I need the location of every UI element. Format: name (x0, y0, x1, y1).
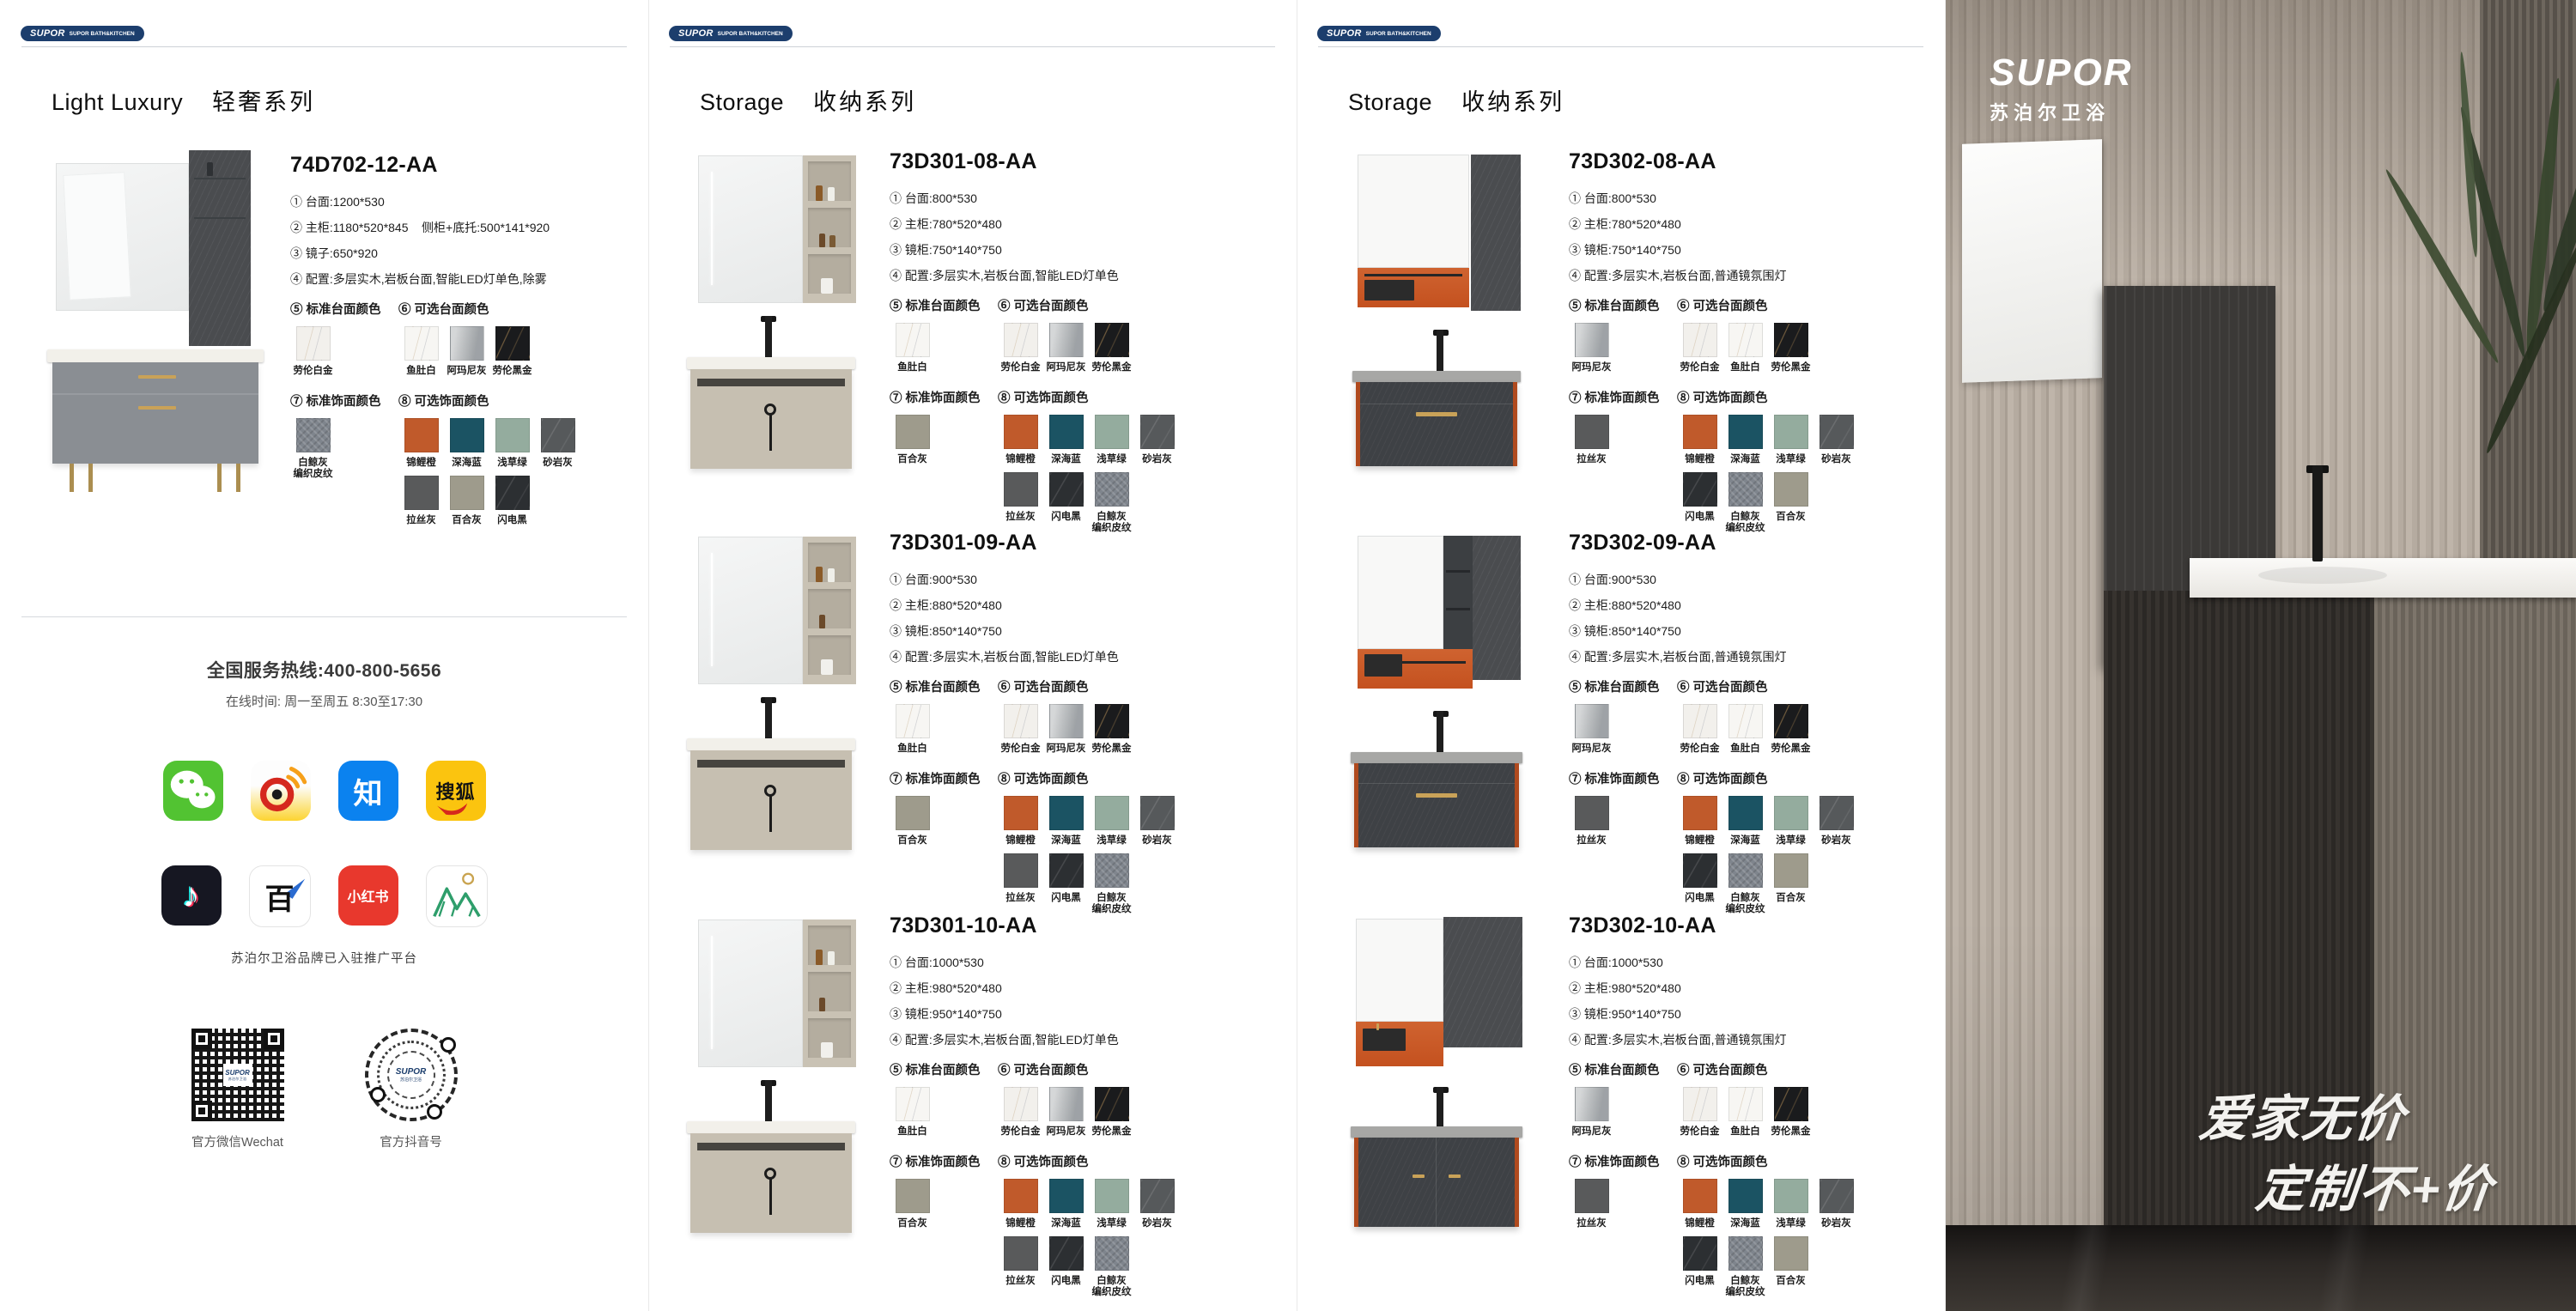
product-spec-line: ③ 镜柜:850*140*750 (1569, 618, 1935, 644)
douyin-glyph: ♪ (183, 877, 200, 915)
series-heading-en: Light Luxury (52, 89, 183, 115)
wechat-icon (163, 761, 223, 821)
product-block: 73D301-10-AA ① 台面:1000*530 ② 主柜:980*520*… (678, 908, 1286, 1284)
swatch-label: 浅草绿 (1768, 1218, 1814, 1229)
series-heading: Light Luxury轻奢系列 (52, 83, 315, 117)
handle-stem (769, 415, 772, 451)
product-spec-line: ① 台面:800*530 (890, 185, 1286, 211)
swatch-chip (1683, 323, 1717, 357)
product-block: 73D302-08-AA ① 台面:800*530 ② 主柜:780*520*4… (1327, 144, 1935, 520)
fold-line (648, 0, 649, 1311)
product-spec-line: ② 主柜:1180*520*845 侧柜+底托:500*141*920 (290, 215, 635, 240)
product-spec-line: ③ 镜柜:750*140*750 (890, 237, 1286, 263)
swatch-chip (1820, 1179, 1854, 1213)
decor-bottle (828, 187, 835, 201)
qr-dot (370, 1087, 386, 1102)
finish-optional-label: ⑧ 可选饰面颜色 (998, 388, 1286, 406)
brand-pill: SUPOR SUPOR BATH&KITCHEN (21, 26, 144, 41)
faucet (1437, 711, 1443, 754)
swatch-chip (1140, 415, 1175, 449)
swatch-label: 劳伦白金 (1677, 744, 1722, 755)
baijiahao-icon: 百 (249, 865, 311, 927)
product-spec-line: ② 主柜:880*520*480 (890, 592, 1286, 618)
finish-standard-label: ⑦ 标准饰面颜色 (1569, 1152, 1677, 1170)
swatch-label: 浅草绿 (489, 458, 535, 469)
swatch-label: 劳伦黑金 (1768, 744, 1814, 755)
brand-logo-text: SUPOR (1327, 28, 1362, 39)
swatch-label: 劳伦白金 (998, 744, 1043, 755)
black-tray (1364, 654, 1402, 677)
swatch: 砂岩灰 (1134, 415, 1180, 465)
swatch-chip (1774, 853, 1808, 888)
qr-brand-text: SUPOR (396, 1067, 427, 1077)
mirror (1358, 155, 1469, 268)
swatch: 鱼肚白 (398, 326, 444, 377)
swatch: 劳伦黑金 (1089, 323, 1134, 373)
platforms-note: 苏泊尔卫浴品牌已入驻推广平台 (21, 949, 627, 967)
loop-handle (764, 1168, 776, 1180)
swatch-label: 劳伦白金 (998, 1126, 1043, 1138)
swatch: 拉丝灰 (998, 853, 1043, 915)
swatch-label: 拉丝灰 (998, 893, 1043, 904)
brand-logo-text: SUPOR (678, 28, 714, 39)
swatch: 锦鲤橙 (1677, 1179, 1722, 1229)
swatch: 深海蓝 (444, 418, 489, 469)
mirror-reflection-sheet (1962, 139, 2102, 383)
brass-knob (1449, 1174, 1461, 1178)
swatch-label: 劳伦白金 (290, 366, 336, 377)
swatch-label: 劳伦黑金 (1768, 1126, 1814, 1138)
mirror (1356, 919, 1443, 1022)
finish-optional-label: ⑧ 可选饰面颜色 (1677, 769, 1935, 787)
swatch-label: 闪电黑 (1043, 1276, 1089, 1287)
swatch: 劳伦白金 (998, 1087, 1043, 1138)
orange-edge (1515, 763, 1519, 847)
countertop-colors: ⑤ 标准台面颜色 阿玛尼灰 ⑥ 可选台面颜色 (1569, 1060, 1935, 1144)
qr-finder (191, 1101, 212, 1121)
qr-brand-text: SUPOR (225, 1069, 249, 1077)
product-spec-line: ① 台面:800*530 (1569, 185, 1935, 211)
swatch-chip (1004, 415, 1038, 449)
baijiahao-glyph: 百 (265, 876, 295, 918)
swatch-label: 拉丝灰 (998, 512, 1043, 523)
countertop-optional-label: ⑥ 可选台面颜色 (998, 1060, 1286, 1078)
swatch-chip (1728, 1236, 1763, 1271)
product-spec-line: ② 主柜:780*520*480 (1569, 211, 1935, 237)
swatch: 砂岩灰 (1814, 1179, 1859, 1229)
product-code: 73D301-10-AA (890, 913, 1286, 938)
swatch-label: 砂岩灰 (1134, 1218, 1180, 1229)
swatch-chip (1004, 853, 1038, 888)
swatch-label: 砂岩灰 (1134, 454, 1180, 465)
swatch-chip (1049, 472, 1084, 507)
swatch: 阿玛尼灰 (444, 326, 489, 377)
finish-optional-label: ⑧ 可选饰面颜色 (1677, 1152, 1935, 1170)
swatch: 浅草绿 (1089, 796, 1134, 847)
swatch-chip (1095, 472, 1129, 507)
swatch-chip (495, 326, 530, 361)
shelf-column (1443, 536, 1473, 649)
swatch-label: 砂岩灰 (1134, 835, 1180, 847)
swatch-chip (896, 704, 930, 738)
black-tray (1363, 1029, 1406, 1051)
swatch-label: 闪电黑 (1677, 1276, 1722, 1287)
swatch: 砂岩灰 (535, 418, 580, 469)
swatch-label: 阿玛尼灰 (444, 366, 489, 377)
lower-light-slats (2374, 591, 2576, 1228)
product-spec-line: ② 主柜:780*520*480 (890, 211, 1286, 237)
photo-brand-logo: SUPOR 苏泊尔卫浴 (1990, 52, 2132, 125)
swatch-label: 劳伦白金 (1677, 362, 1722, 373)
qr-douyin-block: SUPOR 苏泊尔卫浴 官方抖音号 (351, 1029, 471, 1150)
swatch-label: 白鲸灰 编织皮纹 (1722, 1276, 1768, 1298)
swatch-chip (1820, 415, 1854, 449)
swatch-label: 锦鲤橙 (1677, 454, 1722, 465)
swatch-label: 闪电黑 (1677, 512, 1722, 523)
service-hours: 在线时间: 周一至周五 8:30至17:30 (21, 692, 627, 710)
countertop-standard-label: ⑤ 标准台面颜色 (890, 296, 998, 314)
swatch-chip (404, 418, 439, 452)
swatch-label: 深海蓝 (1043, 454, 1089, 465)
shelf-line (1446, 570, 1470, 573)
social-icons-row-1: 知 搜狐 (21, 761, 627, 821)
swatch-label: 劳伦黑金 (489, 366, 535, 377)
basin-shadow (2258, 567, 2387, 584)
swatch-label: 砂岩灰 (1814, 835, 1859, 847)
countertop (687, 738, 855, 750)
swatch: 拉丝灰 (1569, 1179, 1614, 1229)
decor-bottle (819, 998, 825, 1011)
handle-stem (769, 1179, 772, 1215)
swatch-label: 闪电黑 (1043, 512, 1089, 523)
swatch: 劳伦黑金 (1768, 323, 1814, 373)
brand-tagline: SUPOR BATH&KITCHEN (718, 31, 783, 37)
swatch: 深海蓝 (1722, 796, 1768, 847)
swatch-label: 鱼肚白 (1722, 1126, 1768, 1138)
swatch: 鱼肚白 (1722, 323, 1768, 373)
swatch-label: 浅草绿 (1089, 1218, 1134, 1229)
product-spec-line: ① 台面:900*530 (1569, 567, 1935, 592)
mirror-cabinet (698, 920, 803, 1067)
orange-edge (1354, 763, 1358, 847)
drawer-seam (1360, 404, 1513, 404)
swatch-label: 锦鲤橙 (998, 835, 1043, 847)
swatch-chip (1095, 1179, 1129, 1213)
faucet (1437, 330, 1443, 373)
swatch-label: 深海蓝 (1722, 1218, 1768, 1229)
finish-standard-label: ⑦ 标准饰面颜色 (1569, 769, 1677, 787)
wechat-glyph (163, 761, 223, 821)
swatch-chip (404, 326, 439, 361)
mirror-reflection (63, 172, 131, 300)
swatch: 鱼肚白 (1722, 704, 1768, 755)
swatch-label: 浅草绿 (1768, 835, 1814, 847)
decor-bottle (819, 615, 825, 628)
swatch-label: 深海蓝 (1043, 835, 1089, 847)
swatch: 锦鲤橙 (998, 415, 1043, 465)
product-code: 73D302-08-AA (1569, 149, 1935, 174)
decor-cup (821, 1042, 833, 1058)
swatch-chip (1728, 853, 1763, 888)
countertop-optional-label: ⑥ 可选台面颜色 (998, 677, 1286, 695)
swatch: 砂岩灰 (1134, 1179, 1180, 1229)
product-info: 73D301-09-AA ① 台面:900*530 ② 主柜:880*520*4… (890, 531, 1286, 922)
swatch-chip (495, 418, 530, 452)
swatch-chip (896, 323, 930, 357)
swatch-label: 拉丝灰 (1569, 835, 1614, 847)
swatch-label: 阿玛尼灰 (1569, 744, 1614, 755)
swatch-chip (1095, 415, 1129, 449)
swatch: 浅草绿 (1089, 1179, 1134, 1229)
swatch: 浅草绿 (1768, 415, 1814, 465)
drawer-handle (138, 406, 176, 410)
wechat-qr-code: SUPOR 苏泊尔卫浴 (191, 1029, 284, 1121)
swatch-label: 锦鲤橙 (1677, 1218, 1722, 1229)
xiaohongshu-glyph: 小红书 (347, 885, 388, 906)
product-spec-line: ④ 配置:多层实木,岩板台面,智能LED灯单色 (890, 263, 1286, 288)
shelf-rail (1364, 274, 1462, 276)
swatch-label: 浅草绿 (1089, 454, 1134, 465)
swatch-chip (1774, 704, 1808, 738)
zhihu-glyph: 知 (354, 770, 383, 812)
swatch-chip (1095, 323, 1129, 357)
swatch-label: 锦鲤橙 (398, 458, 444, 469)
swatch-chip (896, 415, 930, 449)
swatch-label: 鱼肚白 (890, 744, 935, 755)
countertop (1352, 371, 1521, 382)
product-code: 74D702-12-AA (290, 153, 635, 178)
swatch-label: 浅草绿 (1768, 454, 1814, 465)
swatch-label: 白鲸灰 编织皮纹 (290, 458, 336, 480)
swatch-chip (1095, 1087, 1129, 1121)
product-code: 73D302-10-AA (1569, 913, 1935, 938)
swatch-label: 闪电黑 (1043, 893, 1089, 904)
finish-optional-label: ⑧ 可选饰面颜色 (1677, 388, 1935, 406)
orange-edge (1513, 382, 1517, 466)
product-image (1351, 917, 1522, 1219)
swatch-chip (1004, 472, 1038, 507)
orange-edge (1515, 1138, 1519, 1227)
decor-cup (821, 278, 833, 294)
swatch-chip (1774, 1087, 1808, 1121)
swatch-chip (1575, 415, 1609, 449)
swatch-chip (1774, 323, 1808, 357)
swatch-label: 鱼肚白 (398, 366, 444, 377)
swatch-label: 锦鲤橙 (998, 1218, 1043, 1229)
swatch-chip (1004, 1087, 1038, 1121)
swatch: 百合灰 (1768, 1236, 1814, 1298)
swatch: 锦鲤橙 (998, 1179, 1043, 1229)
swatch-chip (896, 796, 930, 830)
swatch-chip (1095, 704, 1129, 738)
swatch-label: 鱼肚白 (1722, 362, 1768, 373)
finish-colors: ⑦ 标准饰面颜色 百合灰 ⑧ 可选饰面颜色 (890, 1152, 1286, 1305)
swatch: 鱼肚白 (890, 323, 935, 373)
catalog-panel-storage-1: SUPOR SUPOR BATH&KITCHEN Storage收纳系列 (648, 0, 1297, 1311)
swatch-label: 百合灰 (444, 515, 489, 526)
finish-standard-label: ⑦ 标准饰面颜色 (890, 388, 998, 406)
swatch-chip (1049, 704, 1084, 738)
swatch: 劳伦白金 (998, 323, 1043, 373)
finish-colors: ⑦ 标准饰面颜色 百合灰 ⑧ 可选饰面颜色 (890, 388, 1286, 541)
photo-logo-text: SUPOR (1990, 52, 2132, 94)
leg (88, 464, 93, 492)
swatch-chip (296, 418, 331, 452)
qr-douyin-label: 官方抖音号 (351, 1132, 471, 1150)
loop-handle (764, 404, 776, 416)
swatch: 劳伦黑金 (1089, 1087, 1134, 1138)
swatch-label: 闪电黑 (1677, 893, 1722, 904)
swatch-label: 百合灰 (890, 1218, 935, 1229)
series-heading-en: Storage (700, 89, 784, 115)
swatch: 砂岩灰 (1814, 796, 1859, 847)
swatch: 鱼肚白 (1722, 1087, 1768, 1138)
product-spec-line: ② 主柜:980*520*480 (890, 975, 1286, 1001)
catalog-panel-storage-2: SUPOR SUPOR BATH&KITCHEN Storage收纳系列 (1297, 0, 1945, 1311)
swatch-label: 拉丝灰 (1569, 1218, 1614, 1229)
countertop-optional-label: ⑥ 可选台面颜色 (1677, 1060, 1935, 1078)
series-heading-cn: 收纳系列 (813, 89, 916, 115)
swatch: 锦鲤橙 (998, 796, 1043, 847)
swatch-label: 百合灰 (890, 835, 935, 847)
product-spec-line: ④ 配置:多层实木,岩板台面,智能LED灯单色,除雾 (290, 266, 635, 292)
product-block: 73D301-08-AA ① 台面:800*530 ② 主柜:780*520*4… (678, 144, 1286, 520)
swatch-label: 拉丝灰 (398, 515, 444, 526)
qr-finder (191, 1029, 212, 1049)
decor-bottle (829, 235, 835, 247)
product-image (47, 150, 275, 492)
swatch: 锦鲤橙 (398, 418, 444, 469)
finish-colors: ⑦ 标准饰面颜色 拉丝灰 ⑧ 可选饰面颜色 (1569, 1152, 1935, 1305)
swatch-chip (1004, 796, 1038, 830)
decor-bottle (816, 185, 823, 201)
swatch-chip (1774, 796, 1808, 830)
handle-stem (769, 796, 772, 832)
swatch: 深海蓝 (1043, 415, 1089, 465)
swatch-chip (1728, 415, 1763, 449)
swatch-label: 深海蓝 (1722, 454, 1768, 465)
fold-line (1297, 0, 1297, 1311)
swatch: 锦鲤橙 (1677, 796, 1722, 847)
countertop-standard-label: ⑤ 标准台面颜色 (1569, 296, 1677, 314)
swatch: 白鲸灰 编织皮纹 (1722, 853, 1768, 915)
product-image (685, 153, 857, 455)
swatch: 闪电黑 (1677, 1236, 1722, 1298)
swatch-label: 百合灰 (1768, 893, 1814, 904)
countertop-colors: ⑤ 标准台面颜色 鱼肚白 ⑥ 可选台面颜色 (890, 1060, 1286, 1144)
finish-optional-label: ⑧ 可选饰面颜色 (998, 769, 1286, 787)
swatch-chip (1683, 796, 1717, 830)
swatch-label: 锦鲤橙 (998, 454, 1043, 465)
swatch-chip (1049, 323, 1084, 357)
drawer-seam (52, 393, 258, 395)
product-info: 73D301-10-AA ① 台面:1000*530 ② 主柜:980*520*… (890, 913, 1286, 1305)
shelf-cell (808, 589, 851, 628)
swatch-chip (1575, 796, 1609, 830)
swatch-chip (1683, 1179, 1717, 1213)
lifestyle-photo-panel: SUPOR 苏泊尔卫浴 SUPOR 苏泊尔卫浴 爱家无价 定制不+价 (1945, 0, 2576, 1311)
swatch-label: 深海蓝 (444, 458, 489, 469)
decor-bottle (816, 567, 823, 582)
swatch-chip (1774, 472, 1808, 507)
product-code: 73D302-09-AA (1569, 531, 1935, 555)
decor-bottle (819, 234, 825, 247)
service-hotline: 全国服务热线:400-800-5656 (21, 657, 627, 683)
faucet (765, 697, 772, 740)
swatch-chip (1049, 853, 1084, 888)
swatch-chip (1049, 415, 1084, 449)
decor-cup (821, 659, 833, 675)
swatch-label: 劳伦黑金 (1089, 744, 1134, 755)
swatch: 白鲸灰 编织皮纹 (1089, 1236, 1134, 1298)
fold-line (1945, 0, 1946, 1311)
countertop (1351, 752, 1522, 763)
swatch-label: 鱼肚白 (890, 362, 935, 373)
swatch-label: 阿玛尼灰 (1043, 744, 1089, 755)
swatch: 劳伦黑金 (1089, 704, 1134, 755)
loop-handle (764, 785, 776, 797)
shelf-line (194, 178, 246, 179)
swatch-chip (1049, 1179, 1084, 1213)
swatch: 劳伦黑金 (489, 326, 535, 377)
faucet (1437, 1087, 1443, 1128)
swatch-chip (1683, 1087, 1717, 1121)
decor-bottle (828, 951, 835, 965)
product-block: 73D302-09-AA ① 台面:900*530 ② 主柜:880*520*4… (1327, 525, 1935, 901)
product-spec-line: ④ 配置:多层实木,岩板台面,智能LED灯单色 (890, 1027, 1286, 1053)
swatch: 阿玛尼灰 (1043, 323, 1089, 373)
swatch-chip (1049, 1236, 1084, 1271)
swatch-chip (1728, 472, 1763, 507)
finish-colors: ⑦ 标准饰面颜色 百合灰 ⑧ 可选饰面颜色 (890, 769, 1286, 922)
mountain-glyph (427, 866, 487, 926)
orange-edge (1354, 1138, 1358, 1227)
swatch-label: 百合灰 (890, 454, 935, 465)
swatch-label: 白鲸灰 编织皮纹 (1089, 1276, 1134, 1298)
product-info: 73D302-09-AA ① 台面:900*530 ② 主柜:880*520*4… (1569, 531, 1935, 922)
vanity-slot (697, 379, 845, 386)
shelf-line (1446, 608, 1470, 610)
countertop (687, 1121, 855, 1133)
swatch: 浅草绿 (489, 418, 535, 469)
qr-codes: SUPOR 苏泊尔卫浴 官方微信Wechat SUPOR 苏泊尔卫浴 (21, 1029, 627, 1150)
finish-standard-label: ⑦ 标准饰面颜色 (290, 391, 398, 410)
swatch: 浅草绿 (1089, 415, 1134, 465)
swatch-chip (1728, 704, 1763, 738)
weibo-icon (251, 761, 311, 821)
swatch-chip (896, 1087, 930, 1121)
decor-bottle (207, 162, 213, 176)
swatch: 鱼肚白 (890, 704, 935, 755)
countertop-optional-label: ⑥ 可选台面颜色 (998, 296, 1286, 314)
side-cabinet (1473, 536, 1521, 680)
swatch-chip (495, 476, 530, 510)
led-strip (711, 936, 713, 1049)
vanity-slot (697, 1143, 845, 1150)
product-spec-line: ① 台面:1200*530 (290, 189, 635, 215)
series-heading: Storage收纳系列 (700, 83, 916, 117)
swatch: 劳伦白金 (1677, 704, 1722, 755)
finish-optional-label: ⑧ 可选饰面颜色 (398, 391, 635, 410)
product-info: 73D302-10-AA ① 台面:1000*530 ② 主柜:980*520*… (1569, 913, 1935, 1305)
swatch-label: 拉丝灰 (998, 1276, 1043, 1287)
swatch-chip (896, 1179, 930, 1213)
brass-knob (1376, 1023, 1379, 1030)
brand-tagline: SUPOR BATH&KITCHEN (70, 31, 135, 37)
countertop-standard-label: ⑤ 标准台面颜色 (1569, 677, 1677, 695)
swatch: 白鲸灰 编织皮纹 (1089, 853, 1134, 915)
brochure-sheet: SUPOR SUPOR BATH&KITCHEN Light Luxury轻奢系… (0, 0, 2576, 1311)
